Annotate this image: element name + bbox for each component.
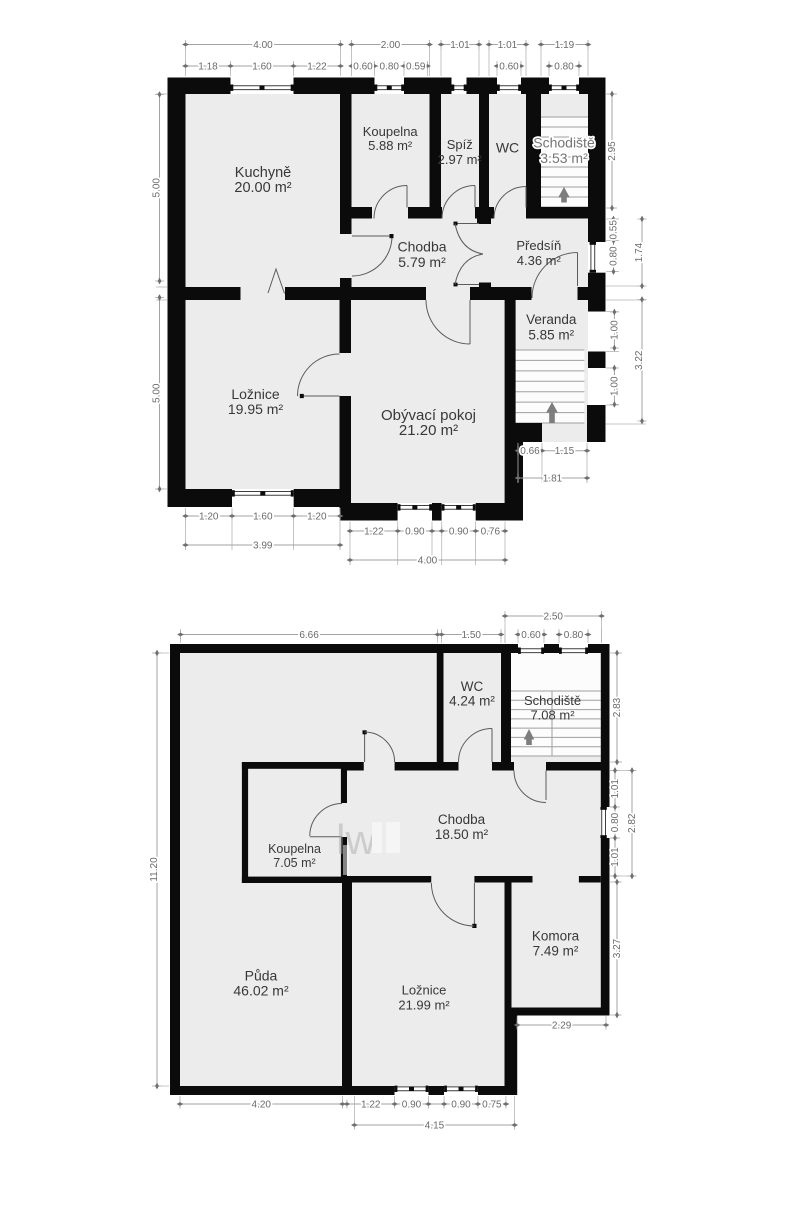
svg-text:2.83: 2.83 bbox=[612, 697, 623, 717]
svg-text:2.00: 2.00 bbox=[381, 40, 401, 51]
svg-text:0.80: 0.80 bbox=[610, 812, 621, 832]
svg-text:Koupelna: Koupelna bbox=[363, 124, 419, 139]
svg-text:Předsíň: Předsíň bbox=[516, 238, 561, 253]
svg-text:1.00: 1.00 bbox=[610, 376, 621, 396]
svg-text:5.00: 5.00 bbox=[152, 383, 163, 403]
svg-text:0.76: 0.76 bbox=[481, 527, 501, 538]
svg-text:5.79 m²: 5.79 m² bbox=[398, 254, 446, 270]
svg-text:1.20: 1.20 bbox=[199, 512, 219, 523]
svg-text:Veranda: Veranda bbox=[526, 312, 577, 327]
svg-text:21.99 m²: 21.99 m² bbox=[398, 998, 450, 1013]
svg-text:19.95 m²: 19.95 m² bbox=[228, 401, 284, 417]
svg-text:1.50: 1.50 bbox=[462, 630, 482, 641]
svg-text:4.24 m²: 4.24 m² bbox=[449, 694, 495, 709]
svg-text:1.01: 1.01 bbox=[498, 40, 518, 51]
svg-text:0.80: 0.80 bbox=[564, 630, 584, 641]
svg-text:1.01: 1.01 bbox=[610, 779, 621, 799]
svg-text:Ložnice: Ložnice bbox=[231, 386, 279, 402]
svg-text:2.29: 2.29 bbox=[552, 1021, 572, 1032]
svg-text:Chodba: Chodba bbox=[438, 812, 486, 827]
svg-text:46.02 m²: 46.02 m² bbox=[233, 982, 289, 998]
svg-text:1.22: 1.22 bbox=[361, 1100, 381, 1111]
svg-text:1.74: 1.74 bbox=[634, 242, 645, 262]
svg-text:1.60: 1.60 bbox=[252, 62, 272, 73]
svg-text:2.95: 2.95 bbox=[607, 141, 618, 161]
svg-text:0.60: 0.60 bbox=[521, 630, 541, 641]
svg-text:3.22: 3.22 bbox=[634, 350, 645, 370]
svg-text:0.66: 0.66 bbox=[520, 446, 540, 457]
svg-text:0.75: 0.75 bbox=[482, 1100, 502, 1111]
svg-text:2.82: 2.82 bbox=[627, 813, 638, 833]
svg-text:5.00: 5.00 bbox=[152, 178, 163, 198]
svg-text:1.20: 1.20 bbox=[307, 512, 327, 523]
svg-text:0.59: 0.59 bbox=[406, 62, 426, 73]
svg-text:0.80: 0.80 bbox=[554, 62, 574, 73]
svg-text:4.15: 4.15 bbox=[425, 1121, 445, 1132]
svg-text:0.60: 0.60 bbox=[353, 62, 373, 73]
svg-text:18.50 m²: 18.50 m² bbox=[435, 827, 489, 842]
svg-text:1.22: 1.22 bbox=[364, 527, 384, 538]
svg-text:0.80: 0.80 bbox=[380, 62, 400, 73]
svg-text:1.00: 1.00 bbox=[610, 320, 621, 340]
svg-text:1.22: 1.22 bbox=[307, 62, 327, 73]
svg-text:3.53 m²: 3.53 m² bbox=[540, 150, 588, 166]
svg-text:1.19: 1.19 bbox=[555, 40, 575, 51]
svg-text:0.60: 0.60 bbox=[499, 62, 519, 73]
svg-text:1.15: 1.15 bbox=[555, 446, 575, 457]
svg-text:7.05 m²: 7.05 m² bbox=[273, 856, 315, 870]
svg-text:Spíž: Spíž bbox=[447, 137, 473, 152]
svg-text:WC: WC bbox=[461, 679, 484, 694]
svg-text:Půda: Půda bbox=[245, 968, 278, 984]
svg-text:0.55: 0.55 bbox=[609, 220, 620, 240]
svg-text:3.27: 3.27 bbox=[612, 938, 623, 958]
svg-text:0.90: 0.90 bbox=[405, 527, 425, 538]
svg-text:11.20: 11.20 bbox=[149, 857, 160, 882]
svg-text:lw: lw bbox=[336, 816, 376, 863]
svg-text:1.81: 1.81 bbox=[543, 474, 563, 485]
svg-text:1.18: 1.18 bbox=[198, 62, 218, 73]
svg-text:0.80: 0.80 bbox=[609, 246, 620, 266]
svg-text:5.85 m²: 5.85 m² bbox=[528, 328, 574, 343]
svg-text:WC: WC bbox=[496, 140, 519, 156]
svg-text:7.49 m²: 7.49 m² bbox=[533, 944, 579, 959]
svg-text:Koupelna: Koupelna bbox=[268, 842, 321, 856]
svg-text:4.36 m²: 4.36 m² bbox=[517, 253, 562, 268]
svg-text:7.08 m²: 7.08 m² bbox=[530, 708, 575, 723]
svg-text:3.99: 3.99 bbox=[253, 541, 273, 552]
svg-text:1.01: 1.01 bbox=[450, 40, 470, 51]
svg-text:1.01: 1.01 bbox=[610, 847, 621, 867]
svg-text:21.20 m²: 21.20 m² bbox=[399, 422, 458, 439]
svg-text:1.60: 1.60 bbox=[253, 512, 273, 523]
svg-text:6.66: 6.66 bbox=[299, 630, 319, 641]
svg-text:4.00: 4.00 bbox=[418, 556, 438, 567]
svg-text:4.00: 4.00 bbox=[253, 40, 273, 51]
svg-text:2.50: 2.50 bbox=[544, 612, 564, 623]
svg-text:4.20: 4.20 bbox=[252, 1100, 272, 1111]
svg-text:Kuchyně: Kuchyně bbox=[235, 165, 291, 181]
svg-text:Chodba: Chodba bbox=[397, 238, 446, 254]
svg-text:Schodiště: Schodiště bbox=[524, 693, 581, 708]
svg-text:2.97 m²: 2.97 m² bbox=[438, 152, 483, 167]
svg-text:0.90: 0.90 bbox=[451, 1100, 471, 1111]
svg-text:20.00 m²: 20.00 m² bbox=[234, 180, 291, 196]
svg-text:Ložnice: Ložnice bbox=[402, 983, 447, 998]
svg-text:0.90: 0.90 bbox=[402, 1100, 422, 1111]
svg-text:0.90: 0.90 bbox=[449, 527, 469, 538]
svg-text:Schodiště: Schodiště bbox=[533, 135, 595, 151]
svg-text:Komora: Komora bbox=[532, 929, 580, 944]
svg-text:5.88 m²: 5.88 m² bbox=[368, 138, 413, 153]
